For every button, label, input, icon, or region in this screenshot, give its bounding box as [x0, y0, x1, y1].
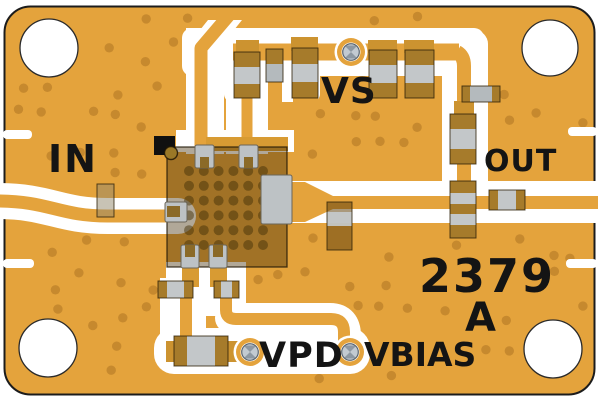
- via-dot: [43, 83, 52, 92]
- chip-via: [214, 196, 224, 206]
- pad: [236, 40, 259, 53]
- chip-via: [228, 210, 238, 220]
- via-dot: [351, 111, 360, 120]
- via-dot: [112, 342, 121, 351]
- chip-via: [184, 225, 194, 235]
- pin-notch: [244, 157, 253, 168]
- via-dot: [109, 148, 118, 157]
- chip-via: [258, 240, 268, 250]
- via-dot: [345, 282, 354, 291]
- mounting-hole-top-left: [20, 19, 78, 77]
- screw-icon: [342, 344, 359, 361]
- capacitor-c4: [405, 50, 434, 98]
- label-vpd: VPD: [259, 336, 344, 376]
- ic-chip: [154, 136, 292, 268]
- via-dot: [531, 108, 540, 117]
- label-revision: A: [465, 295, 496, 341]
- via-dot: [515, 234, 524, 243]
- via-dot: [499, 90, 508, 99]
- via-dot: [137, 169, 146, 178]
- via-dot: [505, 346, 514, 355]
- chip-via: [258, 225, 268, 235]
- edge-slot-left-top: [3, 130, 32, 139]
- via-dot: [14, 105, 23, 114]
- chip-via: [199, 240, 209, 250]
- resistor-mid-right: [327, 202, 352, 250]
- chip-via: [228, 240, 238, 250]
- chip-via: [228, 181, 238, 191]
- via-dot: [413, 12, 422, 21]
- via-dot: [412, 123, 421, 132]
- via-dot: [149, 285, 158, 294]
- via-dot: [440, 306, 449, 315]
- via-dot: [141, 57, 150, 66]
- capacitor-output: [489, 190, 525, 210]
- label-vs: VS: [321, 71, 377, 112]
- chip-via: [228, 166, 238, 176]
- chip-via: [243, 225, 253, 235]
- pad: [454, 101, 474, 115]
- via-dot: [308, 233, 317, 242]
- chip-via: [243, 196, 253, 206]
- pin-notch: [200, 157, 209, 168]
- chip-via: [184, 166, 194, 176]
- via-dot: [481, 345, 490, 354]
- via-dot: [142, 14, 151, 23]
- resistor-small-top: [266, 49, 283, 82]
- via-dot: [51, 285, 60, 294]
- chip-via: [199, 196, 209, 206]
- edge-slot-right-top: [568, 127, 597, 136]
- capacitor-vpd: [166, 336, 238, 366]
- via-dot: [371, 112, 380, 121]
- via-dot: [116, 278, 125, 287]
- via-dot: [578, 301, 587, 310]
- via-dot: [74, 268, 83, 277]
- via-dot: [82, 235, 91, 244]
- pin-notch: [167, 206, 180, 217]
- via-dot: [120, 237, 129, 246]
- via-dot: [502, 316, 511, 325]
- label-out: OUT: [484, 144, 557, 179]
- capacitor-c1: [234, 52, 260, 98]
- via-dot: [137, 122, 146, 131]
- capacitor-top-right: [462, 86, 500, 102]
- pin-notch: [185, 245, 195, 257]
- screw-icon: [242, 344, 259, 361]
- chip-via: [214, 181, 224, 191]
- capacitor-b1: [158, 281, 193, 298]
- pin-notch: [213, 245, 223, 257]
- chip-via: [199, 210, 209, 220]
- via-dot: [88, 321, 97, 330]
- chip-via: [214, 210, 224, 220]
- via-dot: [403, 304, 412, 313]
- pin1-via: [165, 147, 178, 160]
- chip-pad-right: [261, 175, 292, 224]
- via-dot: [308, 149, 317, 158]
- chip-via: [243, 240, 253, 250]
- capacitor-c5: [450, 114, 476, 164]
- via-dot: [505, 116, 514, 125]
- chip-via: [199, 181, 209, 191]
- capacitor-c2: [292, 48, 318, 98]
- chip-via: [199, 225, 209, 235]
- via-dot: [353, 301, 362, 310]
- pcb-photo: IN VS OUT VPD VBIAS 2379 A: [0, 0, 600, 401]
- via-dot: [399, 138, 408, 147]
- via-dot: [105, 43, 114, 52]
- via-dot: [370, 16, 379, 25]
- via-dot: [300, 267, 309, 276]
- via-dot: [53, 304, 62, 313]
- chip-via: [184, 181, 194, 191]
- via-dot: [110, 168, 119, 177]
- via-dot: [89, 107, 98, 116]
- mounting-hole-top-right: [522, 20, 578, 76]
- via-dot: [37, 107, 46, 116]
- via-dot: [152, 81, 161, 90]
- via-dot: [118, 313, 127, 322]
- via-dot: [111, 110, 120, 119]
- via-dot: [107, 366, 116, 375]
- test-point-vs: [335, 36, 368, 69]
- via-dot: [375, 137, 384, 146]
- mounting-hole-bottom-right: [524, 320, 582, 378]
- via-dot: [352, 137, 361, 146]
- screw-icon: [343, 44, 360, 61]
- chip-via: [228, 196, 238, 206]
- via-dot: [113, 90, 122, 99]
- chip-via: [243, 181, 253, 191]
- via-dot: [253, 275, 262, 284]
- via-dot: [169, 37, 178, 46]
- chip-via: [214, 166, 224, 176]
- via-dot: [48, 248, 57, 257]
- pcb-board-svg: IN VS OUT VPD VBIAS 2379 A: [0, 0, 600, 401]
- label-vbias: VBIAS: [364, 335, 476, 374]
- via-dot: [381, 281, 390, 290]
- chip-via: [228, 225, 238, 235]
- via-dot: [19, 84, 28, 93]
- edge-slot-left-bottom: [3, 259, 34, 268]
- mounting-hole-bottom-left: [19, 319, 77, 377]
- capacitor-c6-dc-block: [450, 181, 476, 238]
- via-dot: [384, 252, 393, 261]
- via-dot: [374, 302, 383, 311]
- via-dot: [183, 14, 192, 23]
- label-in: IN: [48, 137, 98, 181]
- capacitor-b2: [214, 281, 239, 298]
- via-dot: [142, 302, 151, 311]
- resistor-input: [97, 184, 114, 217]
- edge-slot-right-bottom: [566, 259, 597, 268]
- via-dot: [578, 118, 587, 127]
- chip-via: [214, 225, 224, 235]
- via-dot: [273, 270, 282, 279]
- chip-via: [243, 210, 253, 220]
